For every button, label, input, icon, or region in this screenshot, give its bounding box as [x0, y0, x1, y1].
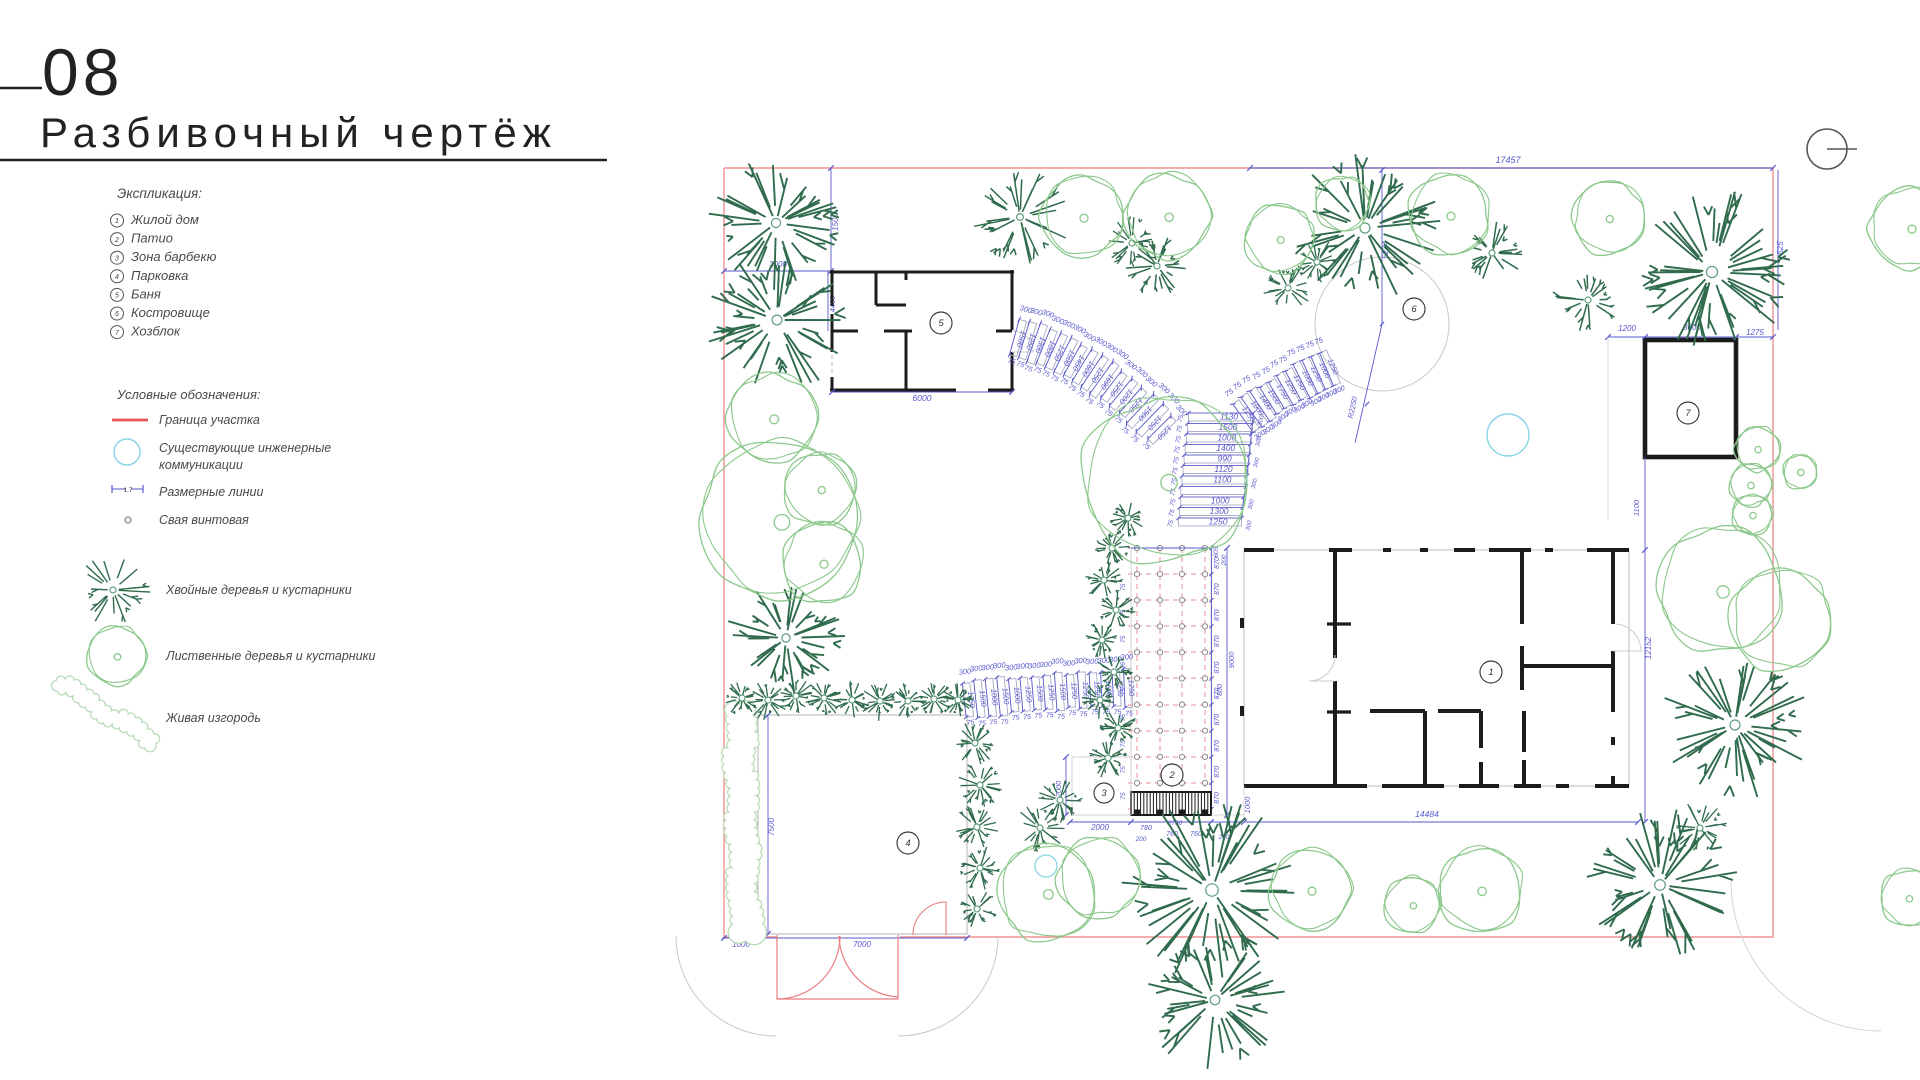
svg-text:75: 75	[1001, 719, 1010, 727]
svg-text:300: 300	[1333, 385, 1347, 396]
svg-text:14484: 14484	[1415, 809, 1439, 819]
svg-text:300: 300	[1253, 456, 1262, 468]
svg-text:Парковка: Парковка	[131, 268, 188, 283]
svg-text:1275: 1275	[1746, 328, 1764, 337]
svg-text:6: 6	[115, 311, 119, 318]
svg-text:75: 75	[1169, 498, 1178, 507]
svg-text:Баня: Баня	[131, 286, 161, 301]
svg-text:1000: 1000	[1211, 496, 1230, 506]
svg-text:75: 75	[1084, 396, 1094, 406]
svg-text:75: 75	[1068, 710, 1076, 717]
svg-text:75: 75	[1007, 358, 1016, 367]
svg-text:75: 75	[1120, 425, 1131, 435]
svg-text:75: 75	[1125, 710, 1133, 717]
svg-text:75: 75	[989, 719, 998, 727]
svg-text:75: 75	[1173, 445, 1182, 454]
svg-text:1: 1	[115, 218, 119, 225]
svg-text:5: 5	[115, 293, 119, 300]
svg-text:R2250: R2250	[1346, 395, 1360, 419]
svg-text:7: 7	[1685, 408, 1691, 419]
svg-text:75: 75	[1120, 792, 1127, 800]
svg-text:870: 870	[1214, 662, 1221, 674]
svg-text:870: 870	[1214, 714, 1221, 726]
svg-text:1100: 1100	[1213, 475, 1232, 485]
svg-text:300: 300	[1251, 477, 1260, 489]
svg-text:870: 870	[1214, 609, 1221, 621]
svg-text:75: 75	[1313, 335, 1325, 347]
svg-text:Свая винтовая: Свая винтовая	[159, 513, 249, 527]
svg-text:75: 75	[1067, 383, 1077, 393]
svg-text:12152: 12152	[1644, 636, 1653, 659]
svg-text:Жилой дом: Жилой дом	[130, 212, 199, 227]
svg-text:75: 75	[1049, 374, 1059, 384]
svg-text:08: 08	[42, 35, 123, 109]
svg-text:9000: 9000	[1227, 651, 1236, 669]
svg-text:1: 1	[1488, 667, 1493, 678]
svg-text:коммуникации: коммуникации	[159, 458, 243, 472]
svg-text:Патио: Патио	[131, 231, 173, 246]
svg-text:870: 870	[1214, 792, 1221, 804]
svg-text:75: 75	[1095, 400, 1106, 410]
svg-text:75: 75	[1023, 714, 1031, 722]
svg-text:75: 75	[1141, 441, 1152, 452]
svg-text:Хвойные деревья и кустарники: Хвойные деревья и кустарники	[165, 583, 352, 597]
svg-text:Костровище: Костровище	[131, 305, 210, 320]
svg-text:Лиственные деревья и кустарник: Лиственные деревья и кустарники	[165, 649, 376, 663]
svg-text:4: 4	[115, 274, 119, 281]
svg-text:870: 870	[1214, 635, 1221, 647]
svg-text:Существующие инженерные: Существующие инженерные	[159, 441, 331, 455]
svg-text:75: 75	[1168, 508, 1177, 517]
svg-text:75: 75	[1171, 466, 1180, 475]
svg-text:800: 800	[1217, 684, 1224, 696]
svg-text:75: 75	[1167, 519, 1176, 528]
svg-text:75: 75	[1059, 377, 1069, 387]
svg-text:Экспликация:: Экспликация:	[117, 186, 202, 201]
svg-text:6: 6	[1411, 304, 1417, 315]
svg-text:75: 75	[1091, 709, 1099, 716]
svg-text:1300: 1300	[1210, 506, 1229, 516]
svg-text:75: 75	[1080, 711, 1088, 718]
svg-text:75: 75	[1176, 424, 1185, 433]
svg-text:75: 75	[1120, 583, 1127, 591]
svg-text:1250: 1250	[1209, 517, 1228, 527]
svg-text:Хозблок: Хозблок	[130, 324, 181, 339]
svg-text:870: 870	[1214, 583, 1221, 595]
svg-text:1250: 1250	[1127, 679, 1137, 697]
svg-text:1120: 1120	[1214, 464, 1233, 474]
svg-text:1400: 1400	[1216, 443, 1235, 453]
svg-text:7500: 7500	[767, 818, 776, 836]
svg-text:1100: 1100	[1632, 499, 1641, 516]
svg-text:7000: 7000	[853, 940, 871, 949]
svg-text:Живая изгородь: Живая изгородь	[165, 711, 261, 725]
svg-text:2: 2	[114, 237, 119, 244]
svg-text:Зона барбекю: Зона барбекю	[131, 249, 217, 264]
svg-text:2: 2	[1168, 770, 1175, 781]
svg-text:4: 4	[905, 838, 910, 849]
svg-text:1200: 1200	[1618, 324, 1636, 333]
svg-text:Размерные линии: Размерные линии	[159, 485, 263, 499]
svg-text:1.7: 1.7	[123, 487, 132, 494]
svg-text:3: 3	[115, 255, 119, 262]
svg-text:Граница участка: Граница участка	[159, 413, 260, 427]
svg-text:870: 870	[1214, 557, 1221, 569]
svg-text:75: 75	[1114, 709, 1122, 716]
svg-text:75: 75	[1120, 635, 1127, 643]
svg-text:605: 605	[1213, 546, 1220, 557]
svg-text:200: 200	[1135, 836, 1147, 843]
svg-text:75: 75	[1120, 766, 1127, 774]
svg-text:17457: 17457	[1495, 155, 1521, 165]
svg-text:990: 990	[1218, 454, 1232, 464]
svg-text:75: 75	[1057, 713, 1065, 721]
svg-text:75: 75	[1129, 434, 1140, 445]
svg-text:75: 75	[1012, 714, 1020, 722]
svg-text:870: 870	[1214, 740, 1221, 752]
svg-text:75: 75	[1023, 365, 1033, 374]
svg-text:760: 760	[1190, 831, 1202, 838]
svg-text:2000: 2000	[1090, 823, 1109, 832]
svg-text:300: 300	[1248, 498, 1257, 510]
svg-text:75: 75	[1046, 712, 1054, 720]
svg-text:870: 870	[1214, 766, 1221, 778]
svg-text:1000: 1000	[1243, 796, 1252, 814]
svg-text:6000: 6000	[913, 393, 932, 403]
svg-text:Разбивочный чертёж: Разбивочный чертёж	[40, 109, 557, 156]
svg-text:75: 75	[978, 720, 987, 728]
svg-text:75: 75	[1172, 456, 1181, 465]
svg-text:75: 75	[1075, 389, 1085, 399]
svg-text:Условные обозначения:: Условные обозначения:	[116, 387, 261, 402]
svg-text:3: 3	[1101, 788, 1107, 799]
svg-text:75: 75	[1175, 435, 1184, 444]
svg-text:780: 780	[1140, 825, 1152, 832]
svg-text:75: 75	[1034, 712, 1042, 720]
svg-text:5: 5	[938, 318, 944, 329]
svg-text:300: 300	[1245, 519, 1254, 531]
